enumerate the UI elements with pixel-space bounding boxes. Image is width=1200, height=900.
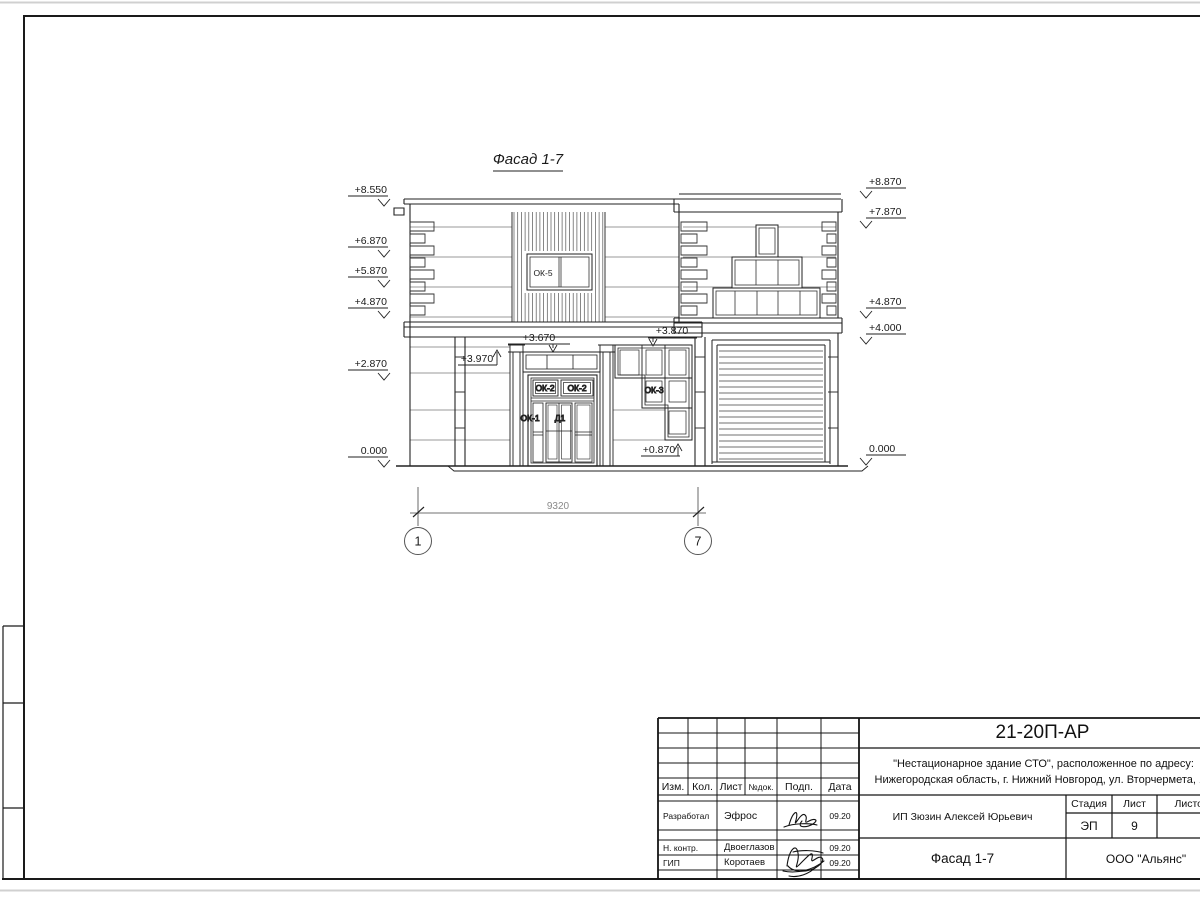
elevation-marks-right: +8.870 +7.870 +4.870 +4.000 0.000 bbox=[860, 176, 906, 465]
dimension-axes: 9320 1 7 bbox=[405, 487, 712, 555]
mark-ok3-top: +3.870 bbox=[656, 325, 689, 337]
sheet-label: Лист bbox=[1112, 795, 1157, 813]
row-ncontrol-date: 09.20 bbox=[821, 840, 859, 855]
mark-transom: +3.670 bbox=[523, 332, 556, 344]
window-ok1-label: ОК-1 bbox=[520, 413, 539, 423]
window-pyramid bbox=[713, 225, 820, 318]
stage-label: Стадия bbox=[1066, 795, 1112, 813]
drawing-sheet: { "drawing": { "title": "Фасад 1-7", "ma… bbox=[0, 0, 1200, 900]
mark-pilaster: +3.970 bbox=[461, 353, 494, 365]
elevation-marks-left: +8.550 +6.870 +5.870 +4.870 +2.870 0.000 bbox=[348, 184, 390, 467]
client-name: ИП Зюзин Алексей Юрьевич bbox=[859, 795, 1066, 838]
col-header-ndok: №док. bbox=[745, 778, 777, 795]
mark-left-5870: +5.870 bbox=[355, 265, 388, 277]
door-d1-label: Д1 bbox=[555, 413, 566, 423]
mark-left-6870: +6.870 bbox=[355, 235, 388, 247]
mark-left-8550: +8.550 bbox=[355, 184, 388, 196]
drawing-title-text: Фасад 1-7 bbox=[493, 151, 564, 168]
row-gip-name: Коротаев bbox=[721, 855, 779, 870]
project-description: "Нестационарное здание СТО", расположенн… bbox=[861, 749, 1200, 794]
col-header-data: Дата bbox=[821, 778, 859, 795]
drawing-title: Фасад 1-7 bbox=[493, 151, 564, 171]
sheet-title: Фасад 1-7 bbox=[859, 838, 1066, 879]
col-header-list: Лист bbox=[717, 778, 745, 795]
project-line-1: "Нестационарное здание СТО", расположенн… bbox=[893, 756, 1194, 772]
mark-ok3-bottom: +0.870 bbox=[643, 444, 676, 456]
doc-number: 21-20П-АР bbox=[859, 719, 1200, 747]
facade-drawing: ОК-5 bbox=[348, 151, 906, 555]
row-developer-role: Разработал bbox=[660, 801, 719, 830]
mark-left-0000: 0.000 bbox=[361, 445, 387, 457]
axis-label-7: 7 bbox=[695, 535, 702, 549]
sheet-value: 9 bbox=[1112, 813, 1157, 838]
dimension-value: 9320 bbox=[547, 501, 570, 512]
window-ok5-label: ОК-5 bbox=[533, 268, 552, 278]
signatures bbox=[783, 813, 824, 877]
stage-value: ЭП bbox=[1066, 813, 1112, 838]
sheets-label: Листов bbox=[1157, 795, 1200, 813]
row-gip-role: ГИП bbox=[660, 855, 719, 870]
window-ok5: ОК-5 bbox=[524, 251, 595, 293]
mark-right-0000: 0.000 bbox=[869, 443, 895, 455]
mark-left-4870: +4.870 bbox=[355, 296, 388, 308]
entrance-door: ОК-2 ОК-2 ОК-1 Д1 bbox=[520, 375, 597, 466]
row-ncontrol-name: Двоеглазов bbox=[721, 840, 779, 855]
mark-left-2870: +2.870 bbox=[355, 358, 388, 370]
entrance-transom bbox=[523, 352, 600, 372]
company-name: ООО "Альянс" bbox=[1066, 838, 1200, 879]
window-ok3-label: ОК-3 bbox=[644, 385, 663, 395]
mark-right-4870: +4.870 bbox=[869, 296, 902, 308]
row-developer-date: 09.20 bbox=[821, 801, 859, 830]
col-header-kol: Кол. bbox=[688, 778, 717, 795]
axis-label-1: 1 bbox=[415, 535, 422, 549]
project-line-2: Нижегородская область, г. Нижний Новгоро… bbox=[875, 772, 1200, 788]
mark-right-4000: +4.000 bbox=[869, 322, 902, 334]
row-gip-date: 09.20 bbox=[821, 855, 859, 870]
window-ok2b-label: ОК-2 bbox=[567, 383, 586, 393]
window-ok3: ОК-3 bbox=[615, 345, 692, 440]
row-ncontrol-role: Н. контр. bbox=[660, 840, 719, 855]
row-developer-name: Эфрос bbox=[721, 801, 779, 830]
garage-door bbox=[712, 340, 830, 464]
mark-right-8870: +8.870 bbox=[869, 176, 902, 188]
col-header-podp: Подп. bbox=[777, 778, 821, 795]
mark-right-7870: +7.870 bbox=[869, 206, 902, 218]
col-header-izm: Изм. bbox=[658, 778, 688, 795]
window-ok2a-label: ОК-2 bbox=[535, 383, 554, 393]
ground-line bbox=[396, 466, 868, 471]
